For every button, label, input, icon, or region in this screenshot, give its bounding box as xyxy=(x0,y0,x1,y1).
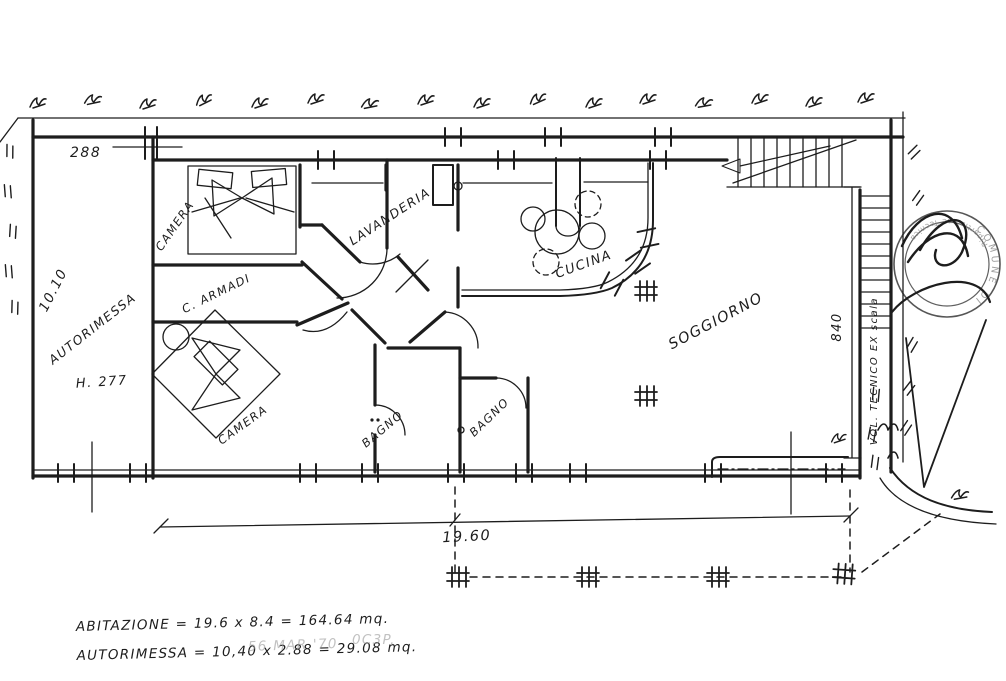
label-bagno-2: BAGNO xyxy=(466,395,512,440)
dim-garage-width: 288 xyxy=(70,145,101,161)
label-vol-tecnico: VOL. TECNICO EX scala xyxy=(869,297,880,445)
walls xyxy=(33,120,903,514)
faded-date-stamp: 56 MAR '70 xyxy=(248,636,338,655)
furniture xyxy=(152,166,605,438)
label-camera-2: CAMERA xyxy=(215,402,270,447)
label-garage-height: H. 277 xyxy=(75,373,128,392)
faded-protocol-stamp: 0C3P. xyxy=(352,632,396,648)
label-bagno-1: BAGNO xyxy=(359,408,406,451)
label-lavanderia: LAVANDERIA xyxy=(346,184,433,248)
label-soggiorno: SOGGIORNO xyxy=(666,290,766,353)
dim-garage-length: 10.10 xyxy=(36,266,71,314)
label-camera-1: CAMERA xyxy=(152,198,197,254)
floor-plan-scan: CAMERA C. ARMADI CAMERA LAVANDERIA CUCIN… xyxy=(0,0,1006,681)
municipal-stamp: COMUNE DI Ripartizione Tecnica xyxy=(878,211,1000,487)
floor-plan-sketch: CAMERA C. ARMADI CAMERA LAVANDERIA CUCIN… xyxy=(0,0,1006,681)
label-cabina-armadi: C. ARMADI xyxy=(180,271,253,316)
dim-house-width: 19.60 xyxy=(442,528,492,547)
note-abitazione: ABITAZIONE = 19.6 x 8.4 = 164.64 mq. xyxy=(75,611,390,635)
dim-house-height: 840 xyxy=(830,312,845,341)
label-autorimessa: AUTORIMESSA xyxy=(45,290,139,368)
dashed-projection-lines xyxy=(447,487,940,587)
